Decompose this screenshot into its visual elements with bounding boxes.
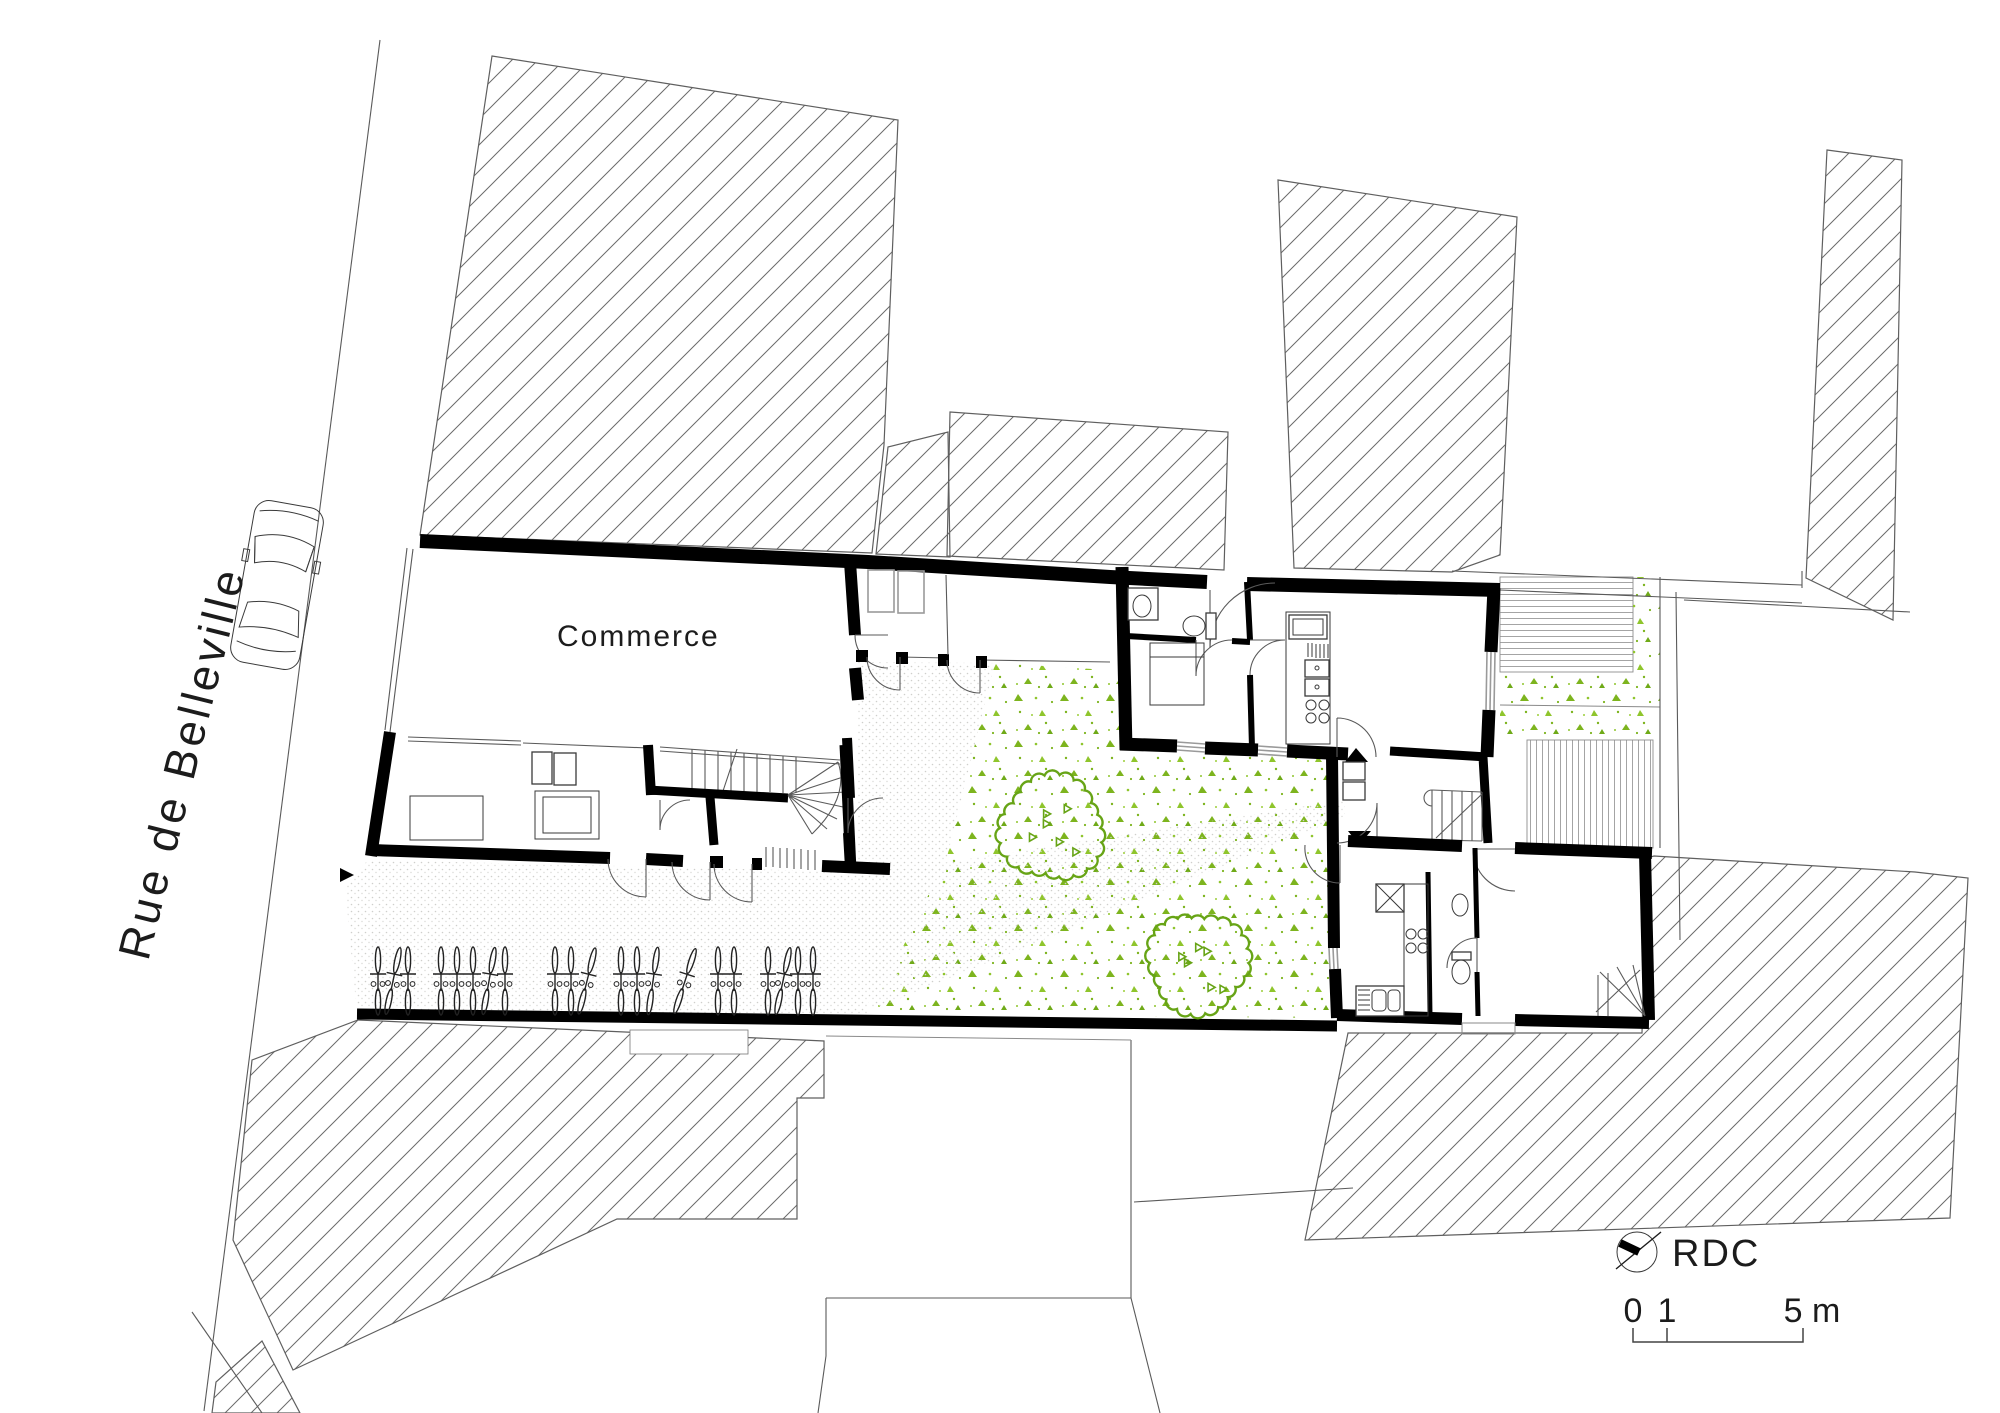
garden-strip-right bbox=[1633, 577, 1660, 672]
neighbor-building-top-center bbox=[947, 412, 1228, 570]
stair-room-stairs bbox=[1424, 790, 1482, 841]
bathroom-sink-lower bbox=[1452, 894, 1468, 916]
commerce-interior-partition bbox=[408, 737, 648, 748]
toilet-bowl bbox=[1183, 616, 1205, 636]
street-name-label: Rue de Belleville bbox=[108, 561, 255, 965]
toilet-tank-lower bbox=[1452, 952, 1471, 960]
toilet-tank bbox=[1206, 613, 1216, 639]
apartment-lower bbox=[1337, 841, 1652, 1034]
north-arrow-icon bbox=[1616, 1232, 1661, 1272]
closet-2 bbox=[554, 753, 576, 785]
terrace-deck-vertical bbox=[1527, 740, 1653, 848]
garden-room-window-1 bbox=[868, 570, 894, 612]
scale-tick-0: 0 bbox=[1624, 1292, 1643, 1330]
floor-plan-canvas: Rue de Belleville bbox=[0, 0, 2000, 1413]
corridor-wall bbox=[850, 562, 858, 700]
corner-stair-lower bbox=[1596, 965, 1645, 1016]
neighbor-building-top-right bbox=[1278, 180, 1517, 572]
scale-bar-line bbox=[1633, 1328, 1803, 1342]
courtyard-edge-line bbox=[826, 1036, 1131, 1040]
neighbor-building-bottom-left bbox=[233, 1020, 824, 1370]
stove-burner bbox=[1306, 700, 1316, 710]
closet-1 bbox=[532, 752, 552, 784]
walkway-paving bbox=[345, 860, 868, 1018]
garden-room-window-2 bbox=[898, 571, 924, 613]
bathroom-sink bbox=[1128, 588, 1158, 620]
stair-room-walls bbox=[1390, 751, 1488, 843]
elevator bbox=[535, 791, 599, 839]
hall-closet-2 bbox=[1343, 782, 1365, 800]
storage-room bbox=[410, 796, 483, 840]
kitchen-lower bbox=[1356, 884, 1428, 1016]
entry-hall bbox=[1305, 718, 1488, 1018]
scale-tick-1: 1 bbox=[1658, 1292, 1677, 1330]
level-label: RDC bbox=[1672, 1233, 1760, 1275]
elevator-cab bbox=[543, 797, 591, 833]
scale-tick-5m: 5 m bbox=[1784, 1292, 1841, 1330]
hall-closet-1 bbox=[1343, 762, 1365, 780]
entry-doormat bbox=[1462, 1023, 1515, 1034]
storefront-glazing bbox=[385, 548, 413, 732]
bottom-left-courtyard-gap bbox=[630, 1030, 748, 1054]
main-staircase bbox=[648, 745, 851, 870]
neighbor-building-far-right bbox=[1806, 150, 1902, 620]
neighbor-building-top-left bbox=[420, 56, 898, 553]
commerce-left-wall bbox=[371, 732, 390, 856]
toilet-bowl-lower bbox=[1452, 960, 1470, 984]
entry-arrow-up-icon bbox=[1345, 748, 1368, 762]
scale-bar: 0 1 5 m bbox=[1624, 1292, 1841, 1342]
parcel-boundary-lines-bottom bbox=[818, 1040, 1353, 1413]
kitchen-upper bbox=[1286, 612, 1330, 744]
commerce-room-label: Commerce bbox=[557, 620, 720, 653]
legend: RDC 0 1 5 m bbox=[1616, 1232, 1840, 1342]
neighbor-building-top-middle-small bbox=[876, 432, 950, 557]
